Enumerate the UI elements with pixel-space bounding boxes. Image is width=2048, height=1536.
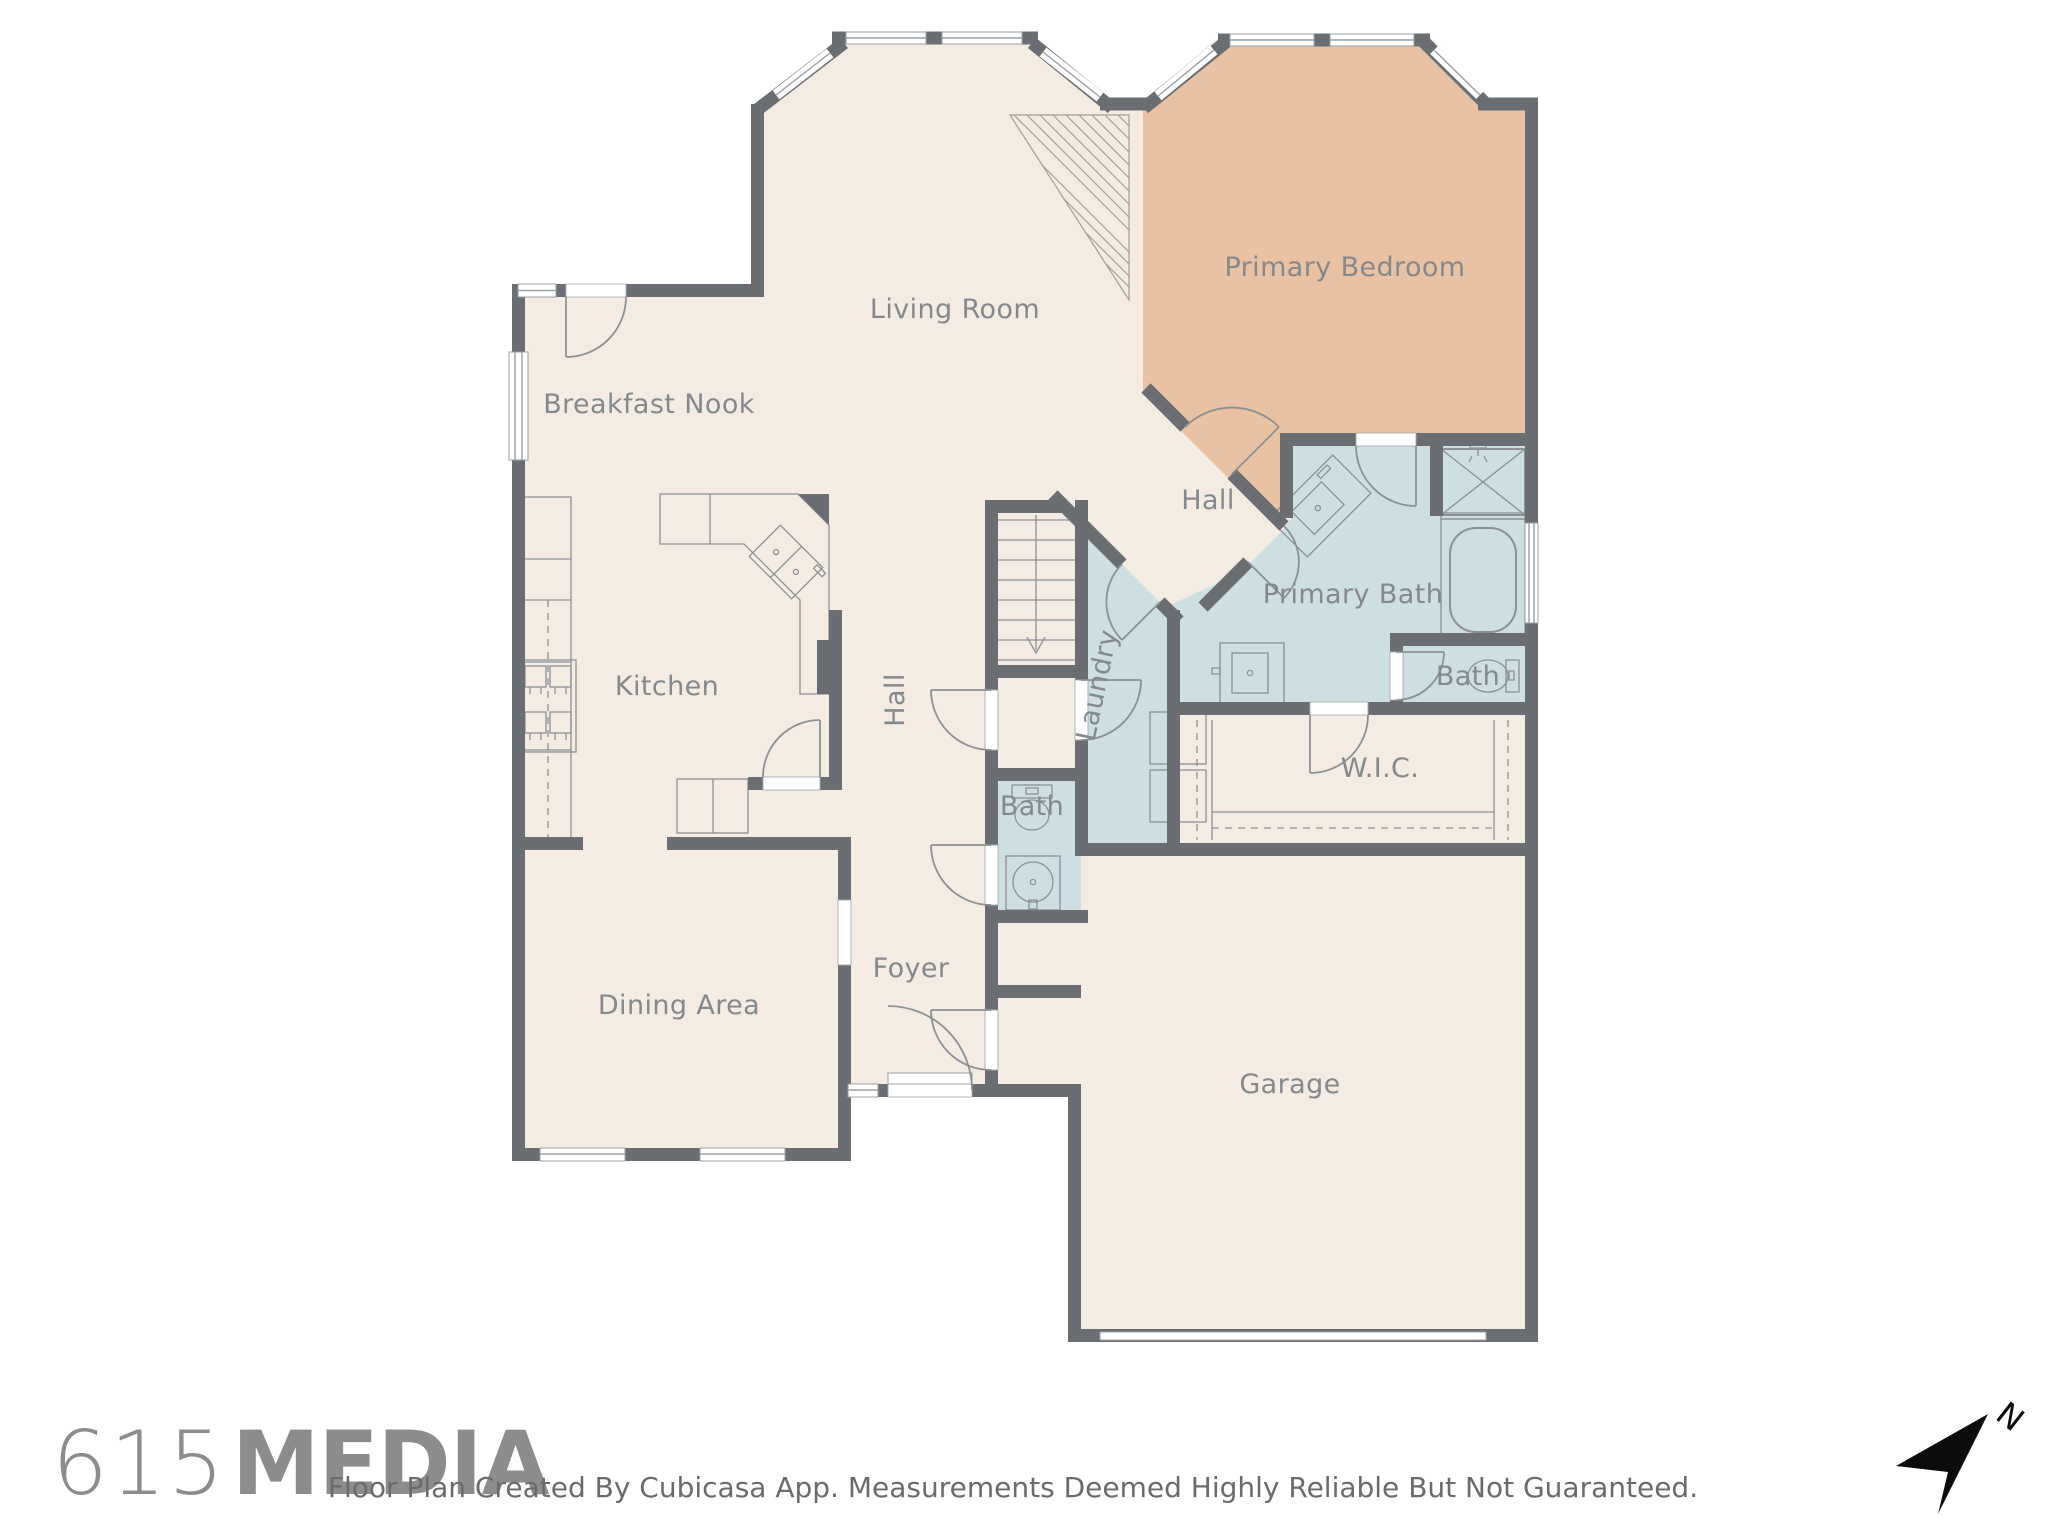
compass-north-icon: N — [1896, 1394, 2031, 1514]
room-label-bath-upper: Bath — [1436, 661, 1500, 692]
room-label-hall-vertical: Hall — [880, 673, 911, 726]
room-label-living-room: Living Room — [870, 294, 1040, 325]
room-label-hall-upper: Hall — [1181, 485, 1234, 516]
logo-prefix: 615 — [52, 1412, 226, 1515]
room-label-dining-area: Dining Area — [598, 990, 760, 1021]
room-label-bath-lower: Bath — [1000, 791, 1064, 822]
floorplan-page: Living Room Primary Bedroom Breakfast No… — [0, 0, 2048, 1536]
room-label-primary-bedroom: Primary Bedroom — [1224, 252, 1465, 283]
footer: 615MEDIA Floor Plan Created By Cubicasa … — [52, 1394, 2031, 1515]
room-label-garage: Garage — [1239, 1069, 1340, 1100]
room-label-kitchen: Kitchen — [615, 671, 719, 702]
island-halfwall — [817, 640, 829, 694]
floorplan-canvas: Living Room Primary Bedroom Breakfast No… — [0, 0, 2048, 1536]
garage-door — [1100, 1332, 1486, 1340]
room-label-primary-bath: Primary Bath — [1263, 579, 1444, 610]
room-label-wic: W.I.C. — [1341, 753, 1420, 784]
compass-north-label: N — [1989, 1394, 2031, 1439]
room-label-breakfast-nook: Breakfast Nook — [543, 389, 755, 420]
front-door-leaf — [888, 1073, 972, 1084]
room-label-foyer: Foyer — [873, 953, 950, 984]
disclaimer-text: Floor Plan Created By Cubicasa App. Meas… — [328, 1471, 1698, 1504]
